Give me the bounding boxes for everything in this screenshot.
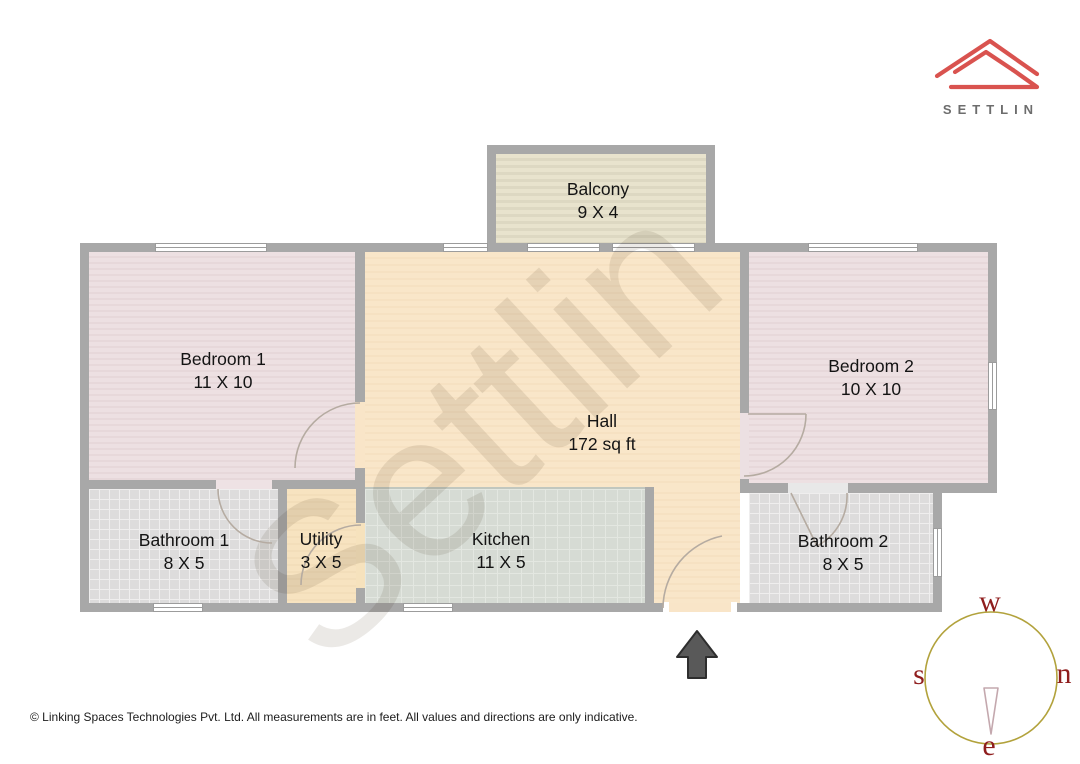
compass-ring	[925, 612, 1057, 744]
window-bedroom2-top	[808, 243, 918, 252]
room-label-utility: Utility 3 X 5	[300, 528, 343, 574]
room-dims: 3 X 5	[300, 551, 343, 574]
room-name: Bathroom 1	[139, 529, 229, 552]
entrance-arrow-icon	[677, 631, 717, 678]
wall-top-left	[80, 243, 492, 252]
room-dims: 8 X 5	[798, 553, 888, 576]
window-bedroom1-top	[155, 243, 267, 252]
room-dims: 11 X 5	[472, 551, 530, 574]
window-kitchen-bottom	[403, 603, 453, 612]
doorway-bathroom1	[216, 480, 272, 489]
compass-letter-s: s	[913, 658, 925, 692]
wall-bathroom1-utility	[278, 489, 287, 603]
wall-bottom-stub2	[737, 603, 745, 612]
doorway-utility	[356, 523, 365, 588]
wall-utility-kitchen-bottom	[356, 588, 365, 603]
window-hall-top	[443, 243, 488, 252]
wall-left-outer	[80, 243, 89, 612]
room-hall-floor-lower	[654, 487, 740, 603]
wall-balcony-left	[487, 145, 496, 252]
brand-name: SETTLIN	[930, 102, 1052, 117]
entrance-jamb-left	[663, 602, 669, 613]
window-bathroom1-bottom	[153, 603, 203, 612]
room-label-bathroom2: Bathroom 2 8 X 5	[798, 530, 888, 576]
sliding-door-balcony-right	[612, 243, 695, 252]
copyright-note: © Linking Spaces Technologies Pvt. Ltd. …	[30, 710, 638, 724]
doorway-entrance	[663, 603, 737, 612]
room-label-balcony: Balcony 9 X 4	[567, 178, 629, 224]
wall-balcony-sill-right	[695, 243, 715, 252]
room-name: Bathroom 2	[798, 530, 888, 553]
room-dims: 10 X 10	[828, 378, 914, 401]
room-dims: 11 X 10	[180, 371, 266, 394]
entrance-jamb-right	[731, 602, 737, 613]
wall-bottom-stub1	[652, 603, 663, 612]
compass-needle-icon	[984, 688, 998, 734]
wall-bedroom1-bottom-right	[272, 480, 365, 489]
floor-plan-page: Settlin Balcony 9 X 4 Bedroom 1 11 X 10 …	[0, 0, 1080, 764]
room-dims: 9 X 4	[567, 201, 629, 224]
room-label-bathroom1: Bathroom 1 8 X 5	[139, 529, 229, 575]
doorway-bedroom2	[740, 413, 749, 479]
wall-bedroom1-bottom-left	[80, 480, 216, 489]
room-name: Bedroom 2	[828, 355, 914, 378]
room-label-kitchen: Kitchen 11 X 5	[472, 528, 530, 574]
wall-bedroom1-hall-top	[355, 243, 365, 402]
room-label-hall: Hall 172 sq ft	[568, 410, 635, 456]
room-hall-floor	[365, 252, 740, 487]
compass-letter-n: n	[1057, 657, 1072, 691]
settlin-logo-icon	[915, 28, 1065, 100]
wall-kitchen-right	[645, 487, 654, 603]
room-dims: 172 sq ft	[568, 433, 635, 456]
compass-letter-e: e	[982, 729, 995, 763]
wall-bathroom2-bottom	[745, 603, 942, 612]
room-name: Utility	[300, 528, 343, 551]
window-bathroom2-right	[933, 528, 942, 577]
wall-balcony-right	[706, 145, 715, 252]
room-dims: 8 X 5	[139, 552, 229, 575]
doorway-bathroom2	[788, 483, 848, 493]
wall-utility-kitchen-top	[356, 489, 365, 523]
sliding-door-balcony-left	[527, 243, 600, 252]
room-name: Kitchen	[472, 528, 530, 551]
wall-balcony-sill-mid	[600, 243, 612, 252]
room-name: Hall	[568, 410, 635, 433]
room-label-bedroom1: Bedroom 1 11 X 10	[180, 348, 266, 394]
room-label-bedroom2: Bedroom 2 10 X 10	[828, 355, 914, 401]
compass-letter-w: w	[979, 585, 1001, 619]
wall-bedroom2-bottom-right	[848, 483, 997, 493]
wall-hall-bedroom2-top	[740, 243, 749, 413]
doorway-bedroom1	[355, 402, 365, 468]
room-name: Balcony	[567, 178, 629, 201]
room-name: Bedroom 1	[180, 348, 266, 371]
wall-bedroom2-bottom-left	[740, 483, 788, 493]
wall-hall-bedroom2-stub	[740, 479, 749, 483]
window-bedroom2-right	[988, 362, 997, 410]
wall-balcony-sill-left	[487, 243, 527, 252]
wall-balcony-top	[487, 145, 715, 154]
